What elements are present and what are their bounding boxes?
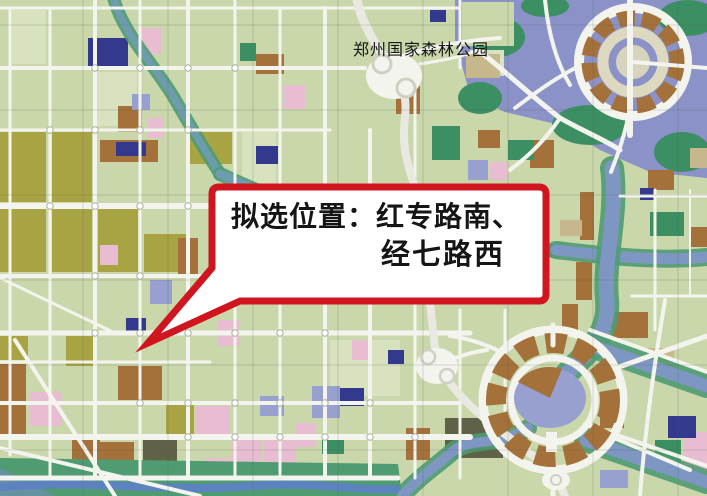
forest-park-label: 郑州国家森林公园 xyxy=(353,36,489,60)
planning-map-screenshot: 郑州国家森林公园 拟选位置：红专路南、 经七路西 xyxy=(0,0,707,496)
highway-interchange-south xyxy=(416,348,458,384)
callout-text-line1: 拟选位置：红专路南、 xyxy=(231,203,521,231)
planning-map-image xyxy=(0,0,707,496)
callout-text-line2: 经七路西 xyxy=(381,240,505,269)
